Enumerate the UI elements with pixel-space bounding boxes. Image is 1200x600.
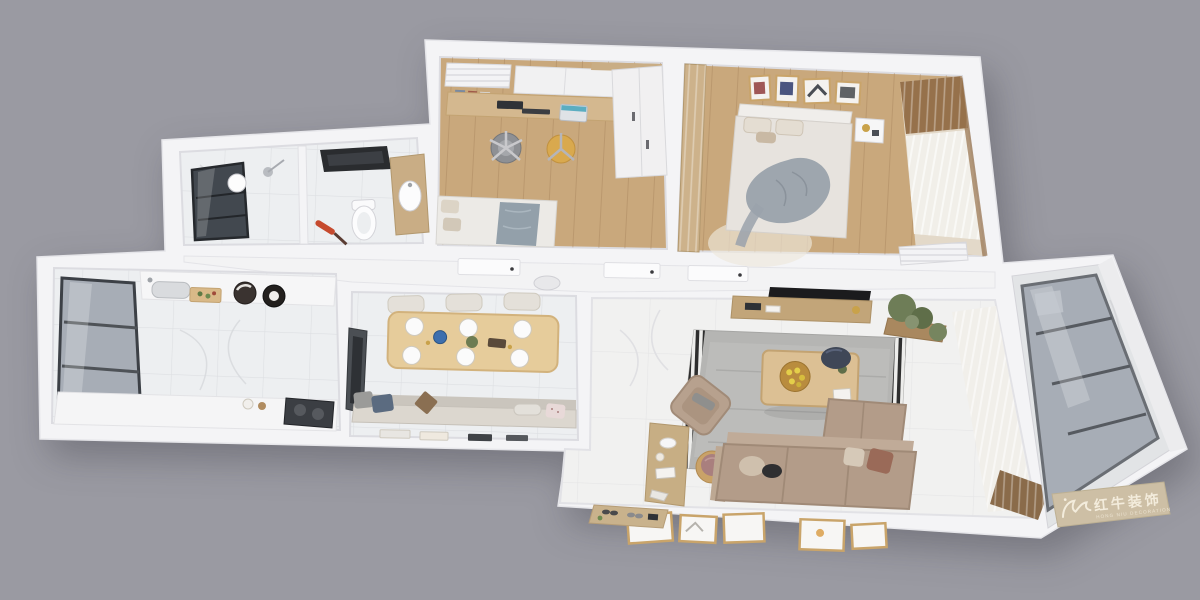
keyboard <box>522 109 550 115</box>
monitor <box>497 101 523 110</box>
vanity <box>390 154 429 235</box>
cabinet-dish <box>660 438 676 448</box>
plate <box>456 348 474 366</box>
plate <box>513 320 531 338</box>
wardrobe <box>612 66 667 178</box>
dining-table <box>387 312 558 372</box>
ceiling-vent <box>534 276 560 290</box>
pillow-navy <box>371 394 394 414</box>
room-kitchen <box>52 268 340 431</box>
tray <box>506 435 528 441</box>
side-cabinet <box>645 423 689 506</box>
console-device <box>745 303 761 311</box>
pillow-cream <box>843 447 865 468</box>
kitchen-faucet <box>148 278 153 283</box>
decor-item <box>872 130 879 136</box>
pillow-gray <box>353 391 374 409</box>
sofa-dark-item <box>762 464 782 478</box>
pendant-lamp <box>228 174 246 192</box>
floor-plan-svg: 红牛装饰 HONG NIU DECORATION <box>0 0 1200 600</box>
pillow-dotted <box>545 403 565 419</box>
plate <box>402 346 420 364</box>
kitchen-sink <box>152 281 191 298</box>
pillow <box>775 119 803 136</box>
single-bed <box>436 196 557 247</box>
toilet <box>352 199 376 240</box>
etched-pane <box>1035 290 1064 315</box>
room-study <box>436 57 667 249</box>
room-living <box>560 287 1050 551</box>
bowl <box>258 402 266 410</box>
mat-item <box>648 514 658 521</box>
shoe <box>635 514 643 519</box>
floor-plan-render: 红牛装饰 HONG NIU DECORATION <box>0 0 1200 600</box>
pillow <box>743 117 771 134</box>
plate <box>510 349 528 367</box>
bolster-pillow <box>514 404 541 415</box>
air-conditioner <box>445 63 511 88</box>
bed-pillow <box>443 217 462 231</box>
console-book <box>766 306 780 312</box>
room-master-bedroom <box>678 64 985 267</box>
mat-plant <box>598 516 603 521</box>
door-leaf <box>604 263 660 279</box>
laptop <box>559 104 587 122</box>
cutting-board <box>190 287 221 302</box>
serving-tray <box>488 338 507 349</box>
room-dining <box>346 292 578 441</box>
bowl <box>243 399 253 409</box>
tv-console <box>731 296 872 323</box>
bed-pillow <box>441 199 460 213</box>
tray <box>468 434 492 441</box>
shoe <box>610 511 618 516</box>
cooktop <box>284 398 334 428</box>
double-bed <box>726 104 852 246</box>
magazine <box>420 432 448 440</box>
faucet <box>408 183 412 187</box>
shoe <box>602 510 610 515</box>
room-bathroom <box>180 138 429 245</box>
plate <box>405 317 423 335</box>
shoe <box>627 513 635 518</box>
sofa-pillow <box>739 456 765 476</box>
shower-partition <box>298 146 308 244</box>
cabinet-cup <box>656 453 664 461</box>
clock <box>862 124 870 132</box>
magazine <box>380 430 410 439</box>
door-leaf <box>458 258 520 275</box>
center-dish <box>433 330 446 343</box>
nightstand <box>855 118 884 143</box>
fruit-plate <box>780 361 811 392</box>
door-leaf <box>688 265 748 281</box>
plate <box>459 319 477 337</box>
pillow-small <box>756 131 777 143</box>
cabinet-tray <box>656 467 676 479</box>
console-decor <box>852 306 860 314</box>
bed-blanket <box>496 202 540 246</box>
